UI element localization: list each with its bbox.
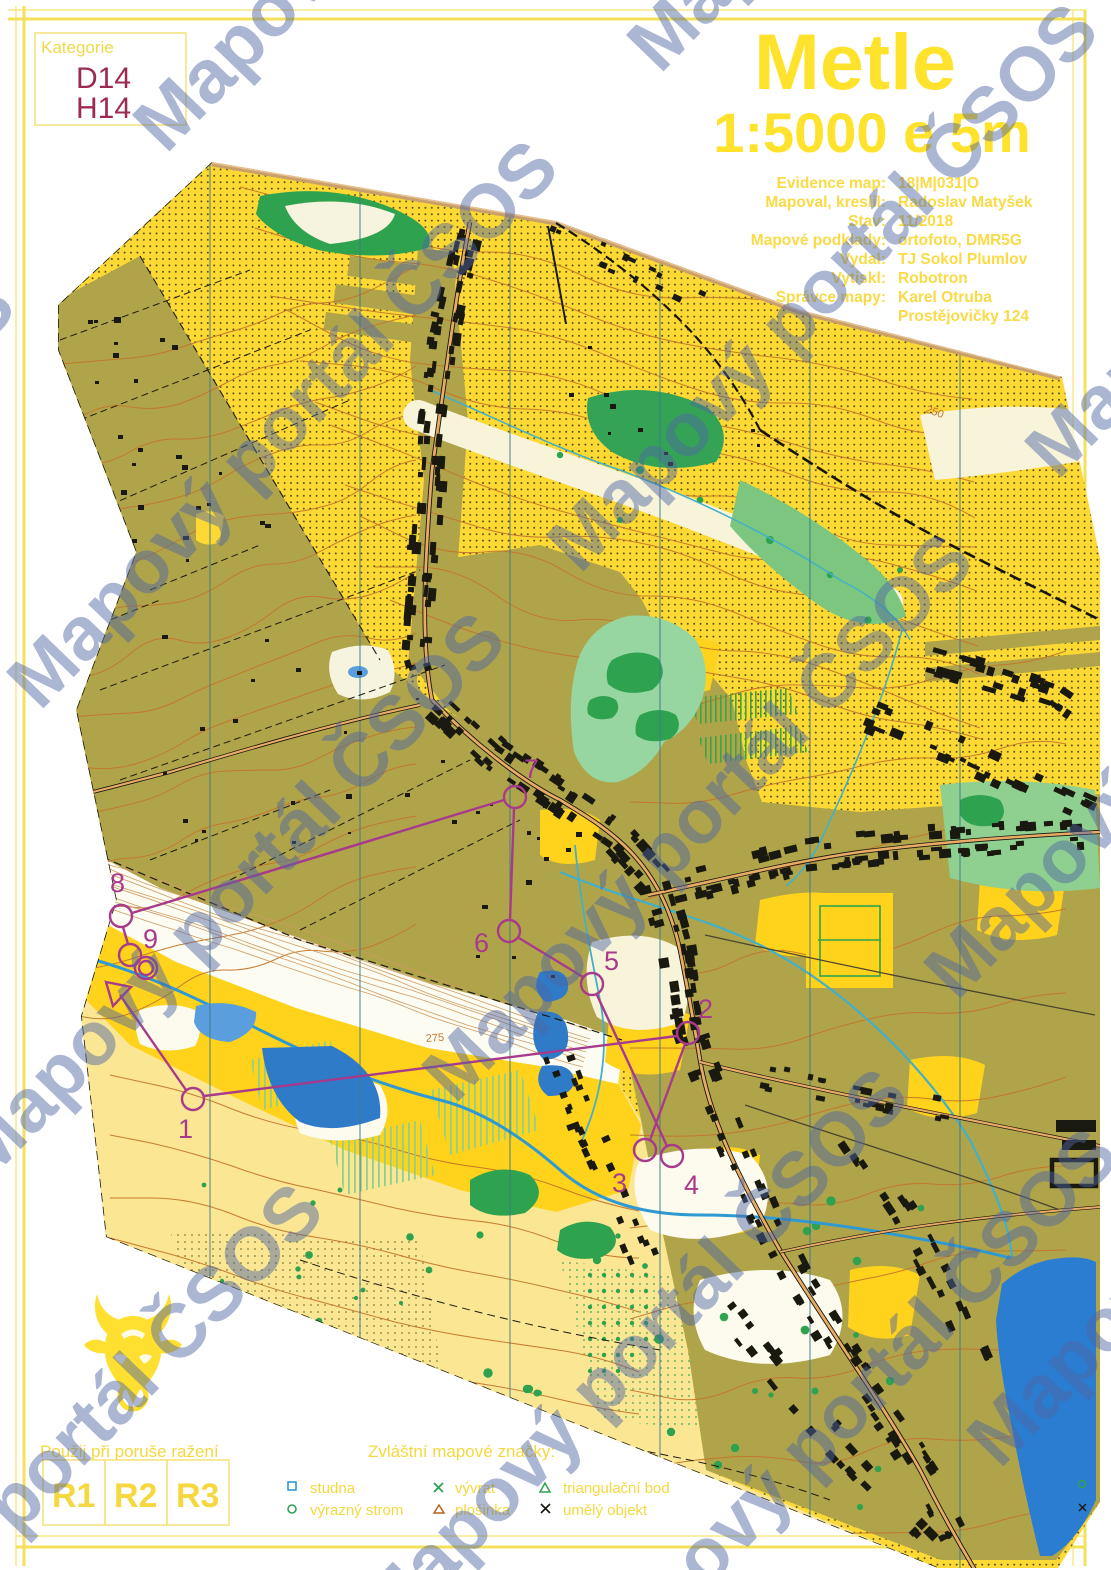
svg-text:4: 4 bbox=[684, 1170, 699, 1200]
svg-text:R2: R2 bbox=[114, 1477, 157, 1515]
svg-text:Robotron: Robotron bbox=[898, 270, 968, 287]
svg-text:Prostějovičky 124: Prostějovičky 124 bbox=[898, 308, 1029, 325]
svg-text:3: 3 bbox=[612, 1168, 627, 1198]
svg-text:2: 2 bbox=[698, 994, 713, 1024]
svg-text:6: 6 bbox=[474, 928, 489, 958]
svg-text:Kategorie: Kategorie bbox=[41, 38, 114, 57]
svg-text:studna: studna bbox=[310, 1480, 356, 1497]
svg-text:1: 1 bbox=[178, 1114, 193, 1144]
svg-text:Metle: Metle bbox=[754, 17, 956, 106]
svg-text:umělý objekt: umělý objekt bbox=[563, 1502, 648, 1519]
svg-text:R3: R3 bbox=[176, 1477, 219, 1515]
svg-text:triangulační bod: triangulační bod bbox=[563, 1480, 670, 1497]
svg-text:výrazný strom: výrazný strom bbox=[310, 1502, 403, 1519]
svg-text:8: 8 bbox=[110, 868, 125, 898]
svg-text:7: 7 bbox=[524, 754, 539, 784]
svg-text:Karel Otruba: Karel Otruba bbox=[898, 289, 992, 306]
svg-text:TJ Sokol Plumlov: TJ Sokol Plumlov bbox=[898, 251, 1028, 268]
svg-text:D14: D14 bbox=[76, 62, 131, 95]
